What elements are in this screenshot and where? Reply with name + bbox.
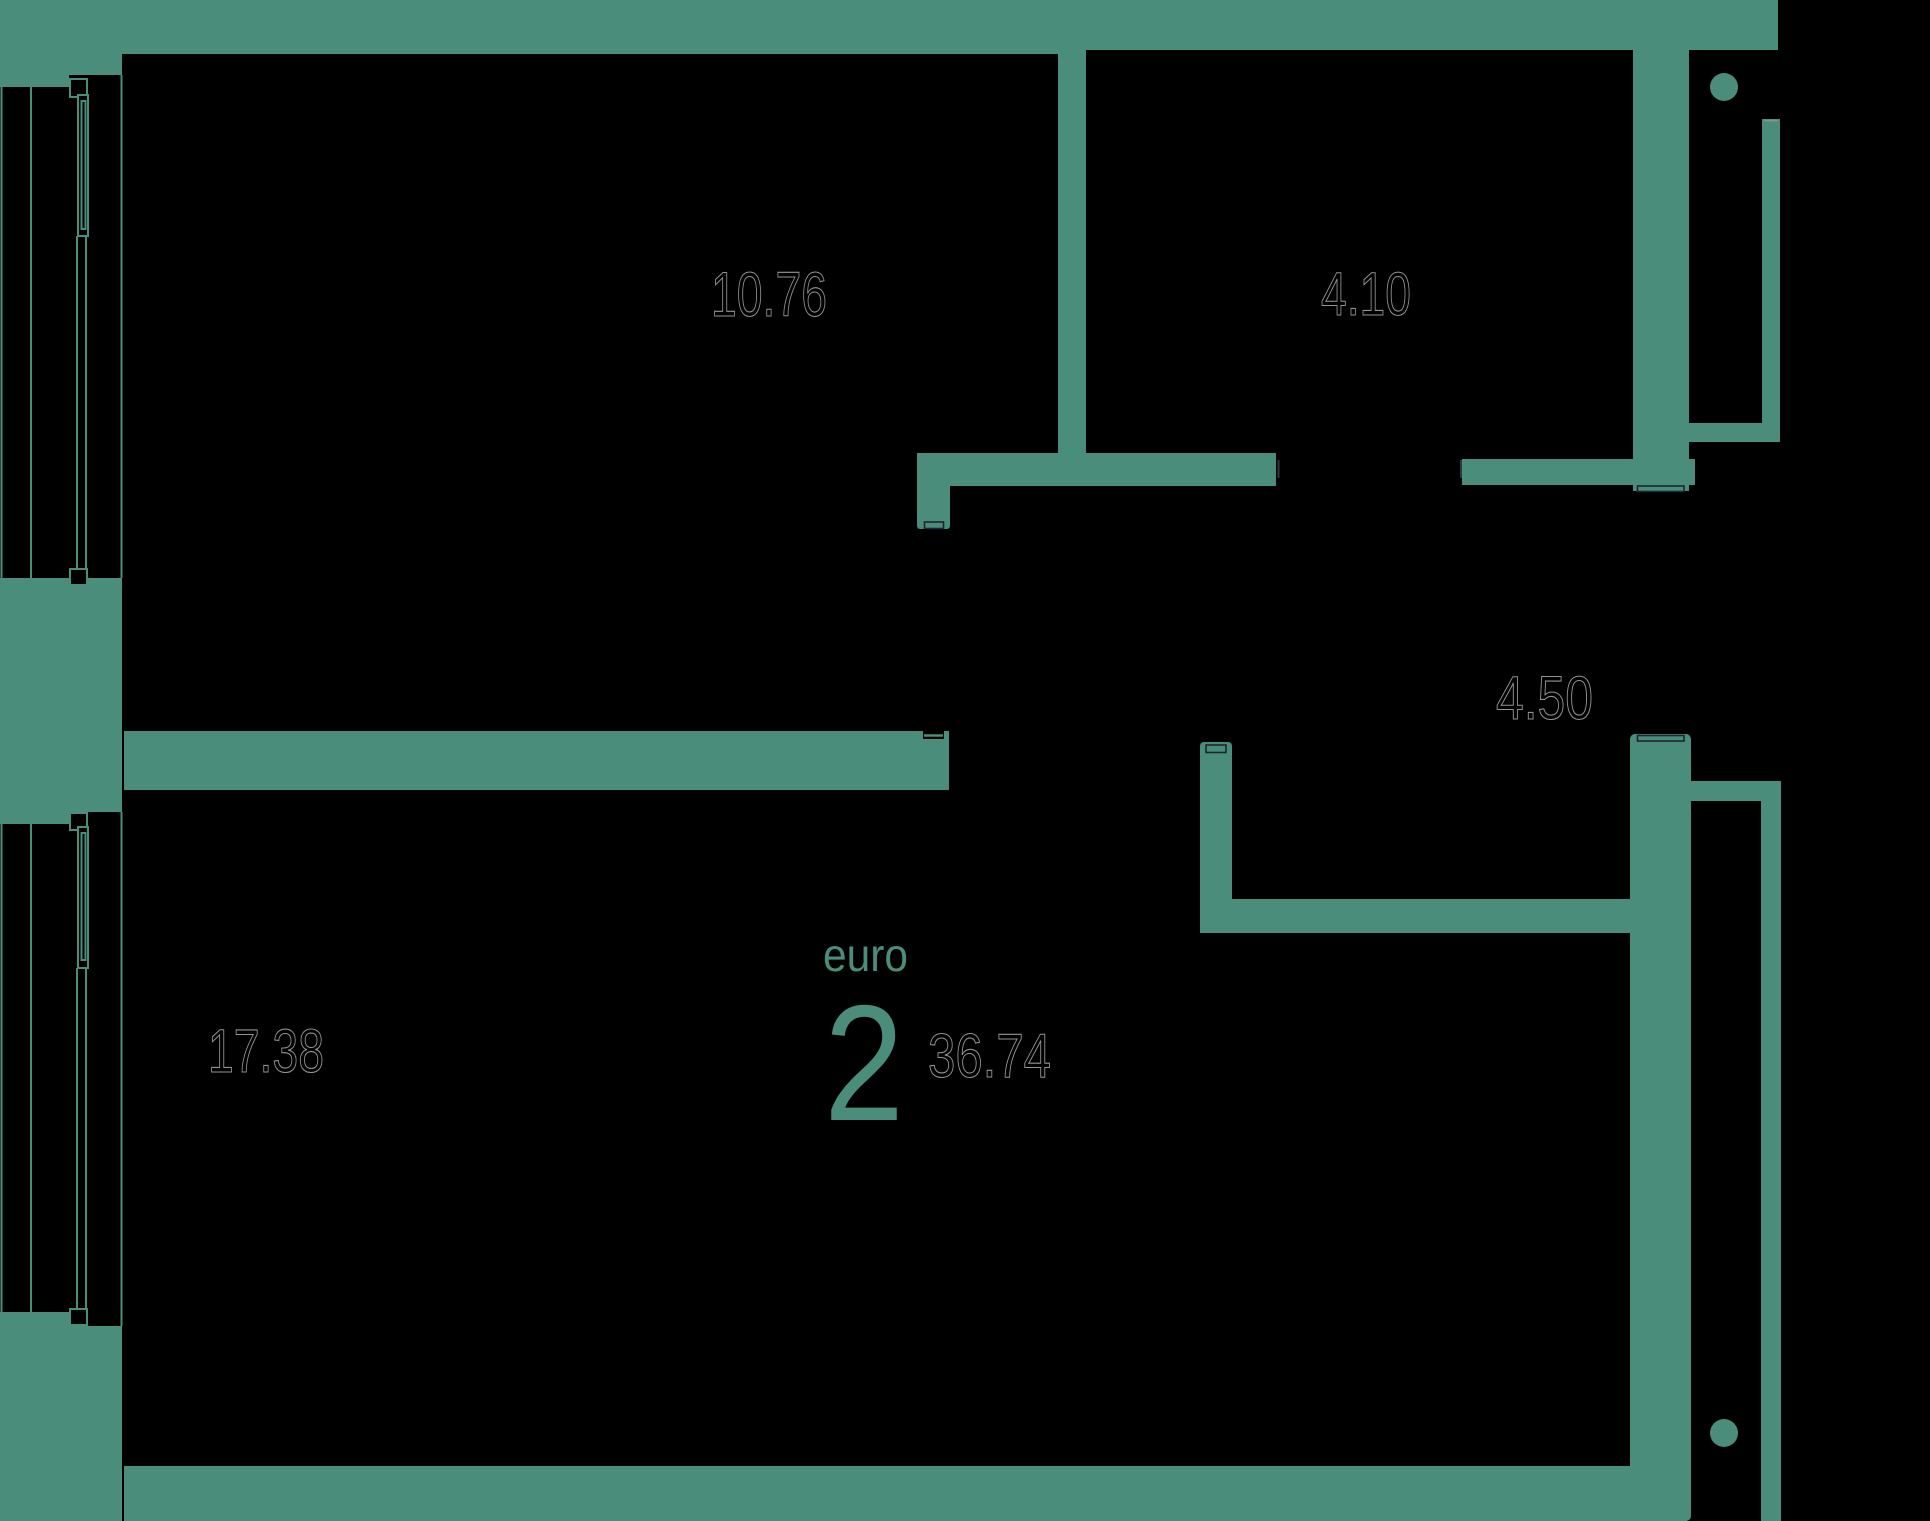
- svg-text:4.10: 4.10: [1321, 260, 1411, 328]
- svg-text:4.50: 4.50: [1496, 664, 1593, 732]
- svg-text:17.38: 17.38: [208, 1017, 324, 1085]
- svg-text:10.76: 10.76: [711, 260, 827, 330]
- svg-text:2: 2: [824, 971, 904, 1155]
- svg-text:36.74: 36.74: [928, 1022, 1051, 1091]
